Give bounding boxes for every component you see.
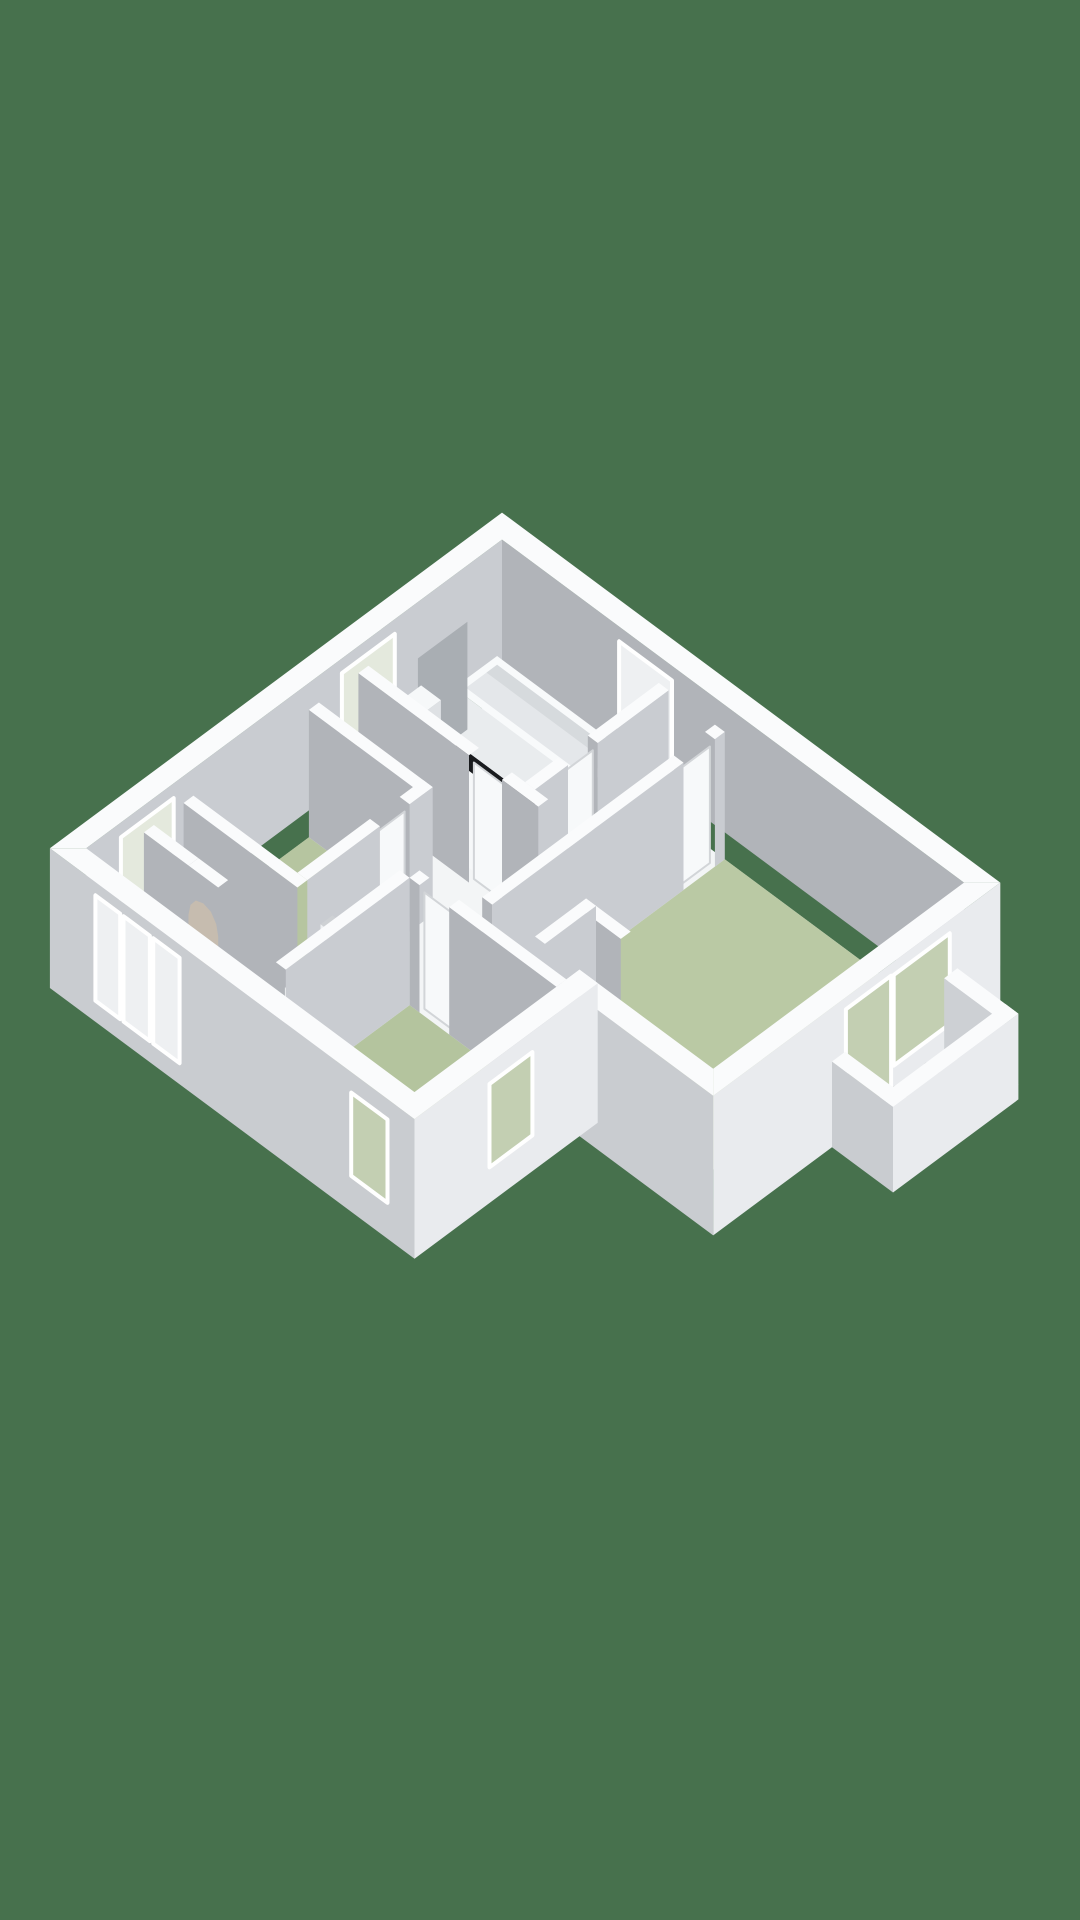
floorplan-3d-svg: [0, 0, 1080, 1920]
bottom-room-wall-a-face: [410, 878, 420, 1013]
sw-window-pane-3: [153, 938, 179, 1063]
hall-door: [474, 763, 507, 904]
living-wall-a-face: [715, 732, 725, 867]
sw-window-pane-1: [95, 895, 120, 1019]
sw-window-pane-2: [124, 916, 150, 1041]
floorplan-3d-view: [0, 0, 1080, 1920]
